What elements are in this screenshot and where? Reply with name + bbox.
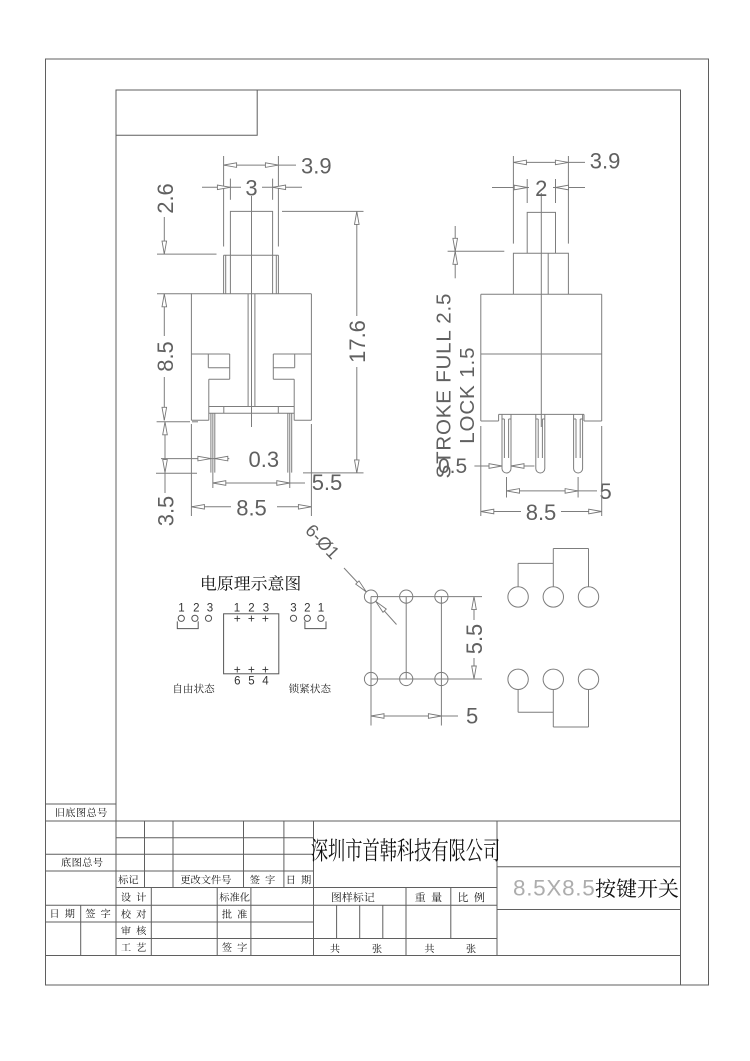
svg-text:3.9: 3.9: [590, 149, 621, 174]
svg-text:5: 5: [248, 676, 254, 688]
svg-text:+: +: [262, 662, 269, 676]
svg-text:1: 1: [178, 603, 184, 615]
svg-text:2: 2: [304, 603, 310, 615]
svg-text:+: +: [262, 611, 269, 625]
svg-text:8.5X8.5: 8.5X8.5: [513, 876, 595, 901]
svg-text:4: 4: [262, 676, 269, 688]
svg-text:0.5: 0.5: [438, 455, 467, 478]
svg-text:3: 3: [207, 603, 213, 615]
svg-text:3: 3: [245, 176, 257, 201]
svg-text:2: 2: [193, 603, 199, 615]
svg-text:5.5: 5.5: [462, 624, 487, 655]
svg-text:8.5: 8.5: [153, 341, 178, 372]
svg-text:LOCK 1.5: LOCK 1.5: [456, 347, 479, 444]
svg-text:5.5: 5.5: [312, 470, 343, 495]
svg-text:3.9: 3.9: [301, 154, 332, 179]
svg-text:8.5: 8.5: [526, 500, 557, 525]
svg-text:STROKE FULL 2.5: STROKE FULL 2.5: [433, 293, 456, 479]
svg-text:+: +: [234, 611, 241, 625]
svg-text:8.5: 8.5: [236, 495, 267, 520]
svg-text:17.6: 17.6: [345, 320, 370, 363]
svg-text:1: 1: [318, 603, 324, 615]
svg-text:+: +: [248, 611, 255, 625]
svg-text:3.5: 3.5: [153, 496, 178, 527]
svg-text:5: 5: [466, 704, 478, 729]
svg-text:0.3: 0.3: [249, 447, 280, 472]
svg-text:2.6: 2.6: [153, 183, 178, 214]
svg-text:+: +: [248, 662, 255, 676]
svg-text:6: 6: [234, 676, 240, 688]
svg-text:2: 2: [535, 176, 547, 201]
svg-text:3: 3: [290, 603, 296, 615]
svg-text:+: +: [234, 662, 241, 676]
